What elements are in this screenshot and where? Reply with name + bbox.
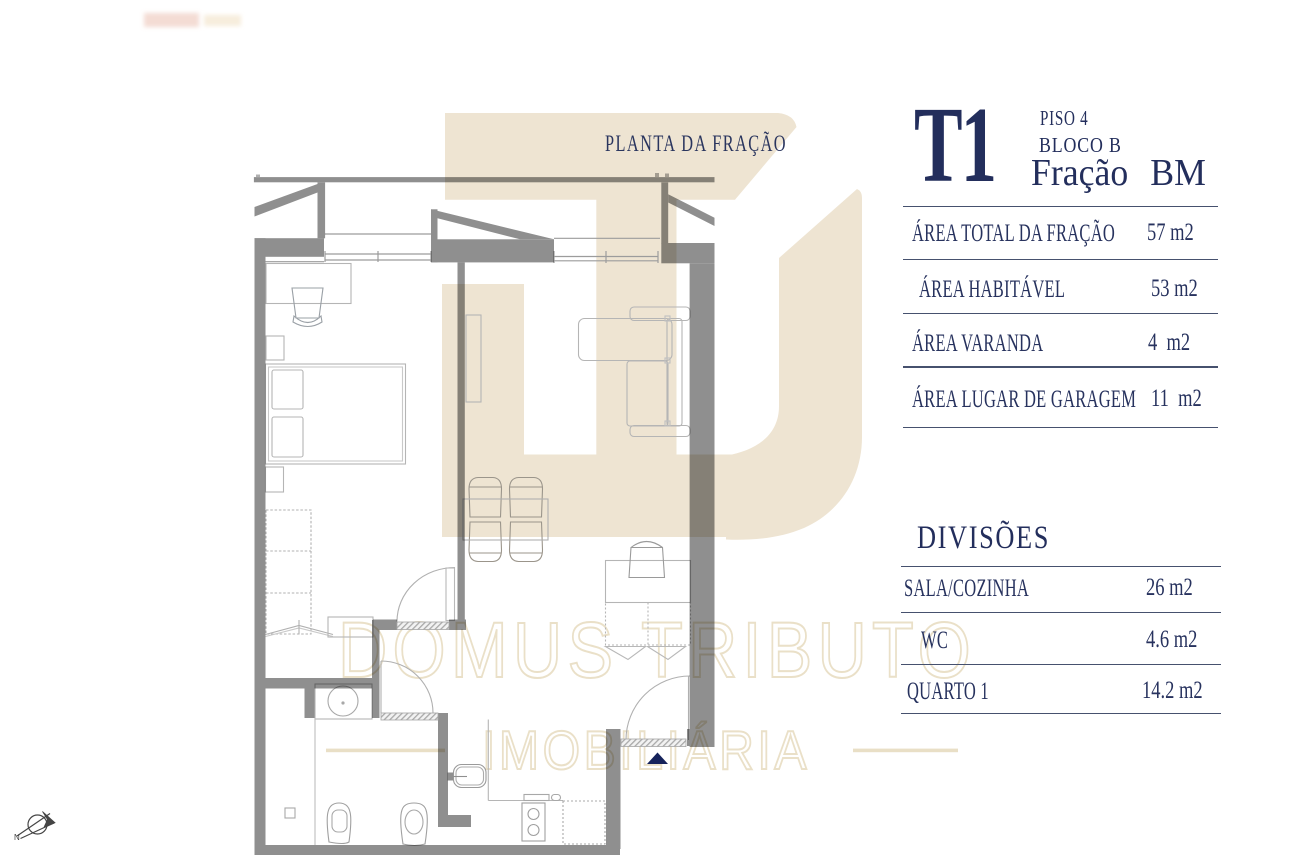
svg-text:N: N [14,833,20,842]
svg-text:IMOBILIÁRIA: IMOBILIÁRIA [482,719,810,781]
svg-text:DOMUS TRIBUTO: DOMUS TRIBUTO [338,605,976,694]
